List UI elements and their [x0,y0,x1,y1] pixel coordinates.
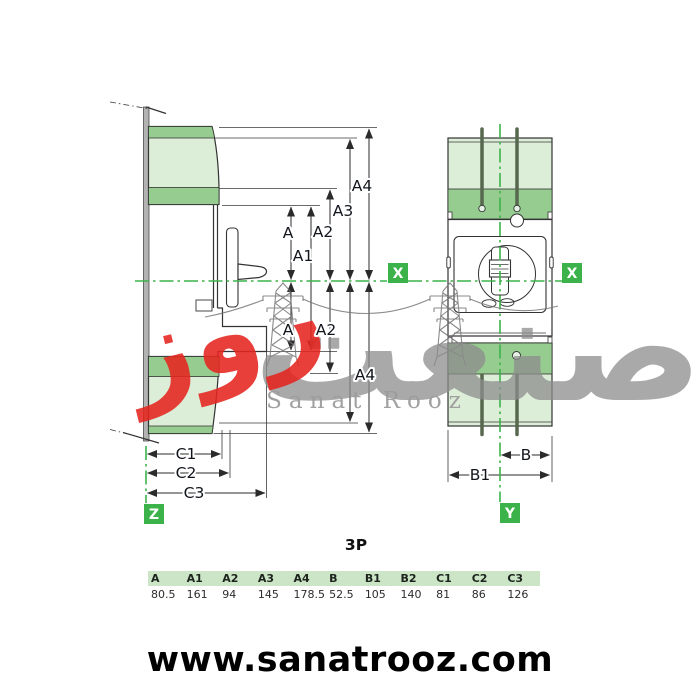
dim-label-c3: C3 [184,484,205,502]
axis-marker-y-label: Y [504,506,516,522]
dim-label-a2-bottom: A2 [316,321,336,339]
dim-label-a-bottom: A [283,321,294,339]
fixing-hole [511,214,524,227]
table-value-cell: 126 [504,586,540,602]
page: A A1 A2 A3 A4 C1 C2 C3 [0,0,700,700]
table-value-cell: 80.5 [148,586,184,602]
table-header-cell: B2 [397,571,433,586]
table-header-cell: A [148,571,184,586]
table-value-cell: 86 [469,586,505,602]
dimension-table: A A1 A2 A3 A4 B B1 B2 C1 C2 C3 80.5 161 … [148,571,540,602]
breaker-dimension-drawing: A A1 A2 A3 A4 C1 C2 C3 [0,0,700,565]
dim-label-c2: C2 [176,464,197,482]
axis-marker-z-label: Z [149,507,159,523]
table-value-cell: 81 [433,586,469,602]
table-value-cell: 145 [255,586,291,602]
table-value-cell: 105 [362,586,398,602]
watermark-latin: Sanat Rooz [266,388,468,414]
top-terminal-shield-side [149,127,220,205]
table-header-cell: A2 [219,571,255,586]
table-value-cell: 94 [219,586,255,602]
dim-label-a2-top: A2 [313,223,333,241]
table-header-cell: C3 [504,571,540,586]
table-value-cell: 140 [397,586,433,602]
wall-axis-bottom [110,430,124,434]
dim-label-b1: B1 [470,466,491,484]
wall-axis-top [110,102,147,109]
website-url: www.sanatrooz.com [0,640,700,680]
table-header-cell: A1 [184,571,220,586]
table-header-cell: B1 [362,571,398,586]
dim-label-a3: A3 [333,202,353,220]
table-header-cell: A3 [255,571,291,586]
table-value-cell: 161 [184,586,220,602]
dim-label-b: B [521,446,532,464]
table-header-cell: C2 [469,571,505,586]
dim-label-c1: C1 [176,445,197,463]
table-value-cell: 178.5 [291,586,327,602]
watermark: صنعت روز Sanat Rooz [107,247,700,436]
table-header-cell: B [326,571,362,586]
table-value-cell: 52.5 [326,586,362,602]
dim-label-a4-bottom: A4 [355,366,375,384]
dim-label-a-top: A [283,224,294,242]
pole-count-label: 3P [345,536,367,554]
depth-dimensions: C1 C2 C3 [148,445,266,502]
table-header-cell: A4 [291,571,327,586]
dim-label-a4-top: A4 [352,177,372,195]
table-header-cell: C1 [433,571,469,586]
